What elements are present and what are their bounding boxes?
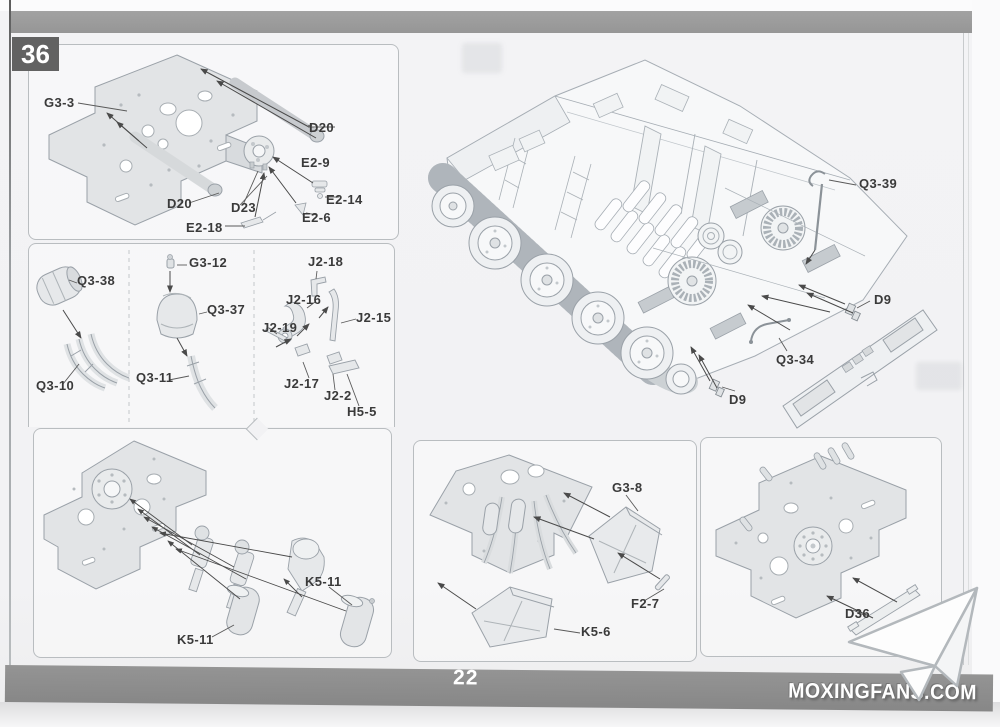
part-label-k5-11-a: K5-11 xyxy=(305,574,342,589)
panel-firewall-assemblies xyxy=(33,428,392,658)
part-label-d9-b: D9 xyxy=(729,392,746,407)
paper-plane-icon xyxy=(843,580,983,707)
step-number-badge: 36 xyxy=(12,37,59,71)
part-label-e2-14: E2-14 xyxy=(326,192,363,207)
part-label-j2-18: J2-18 xyxy=(308,254,343,269)
part-label-f2-7: F2-7 xyxy=(631,596,659,611)
page-number: 22 xyxy=(453,666,479,690)
part-label-q3-11: Q3-11 xyxy=(136,370,173,385)
part-label-e2-18: E2-18 xyxy=(186,220,223,235)
part-label-j2-19: J2-19 xyxy=(262,320,297,335)
part-label-d23: D23 xyxy=(231,200,256,215)
part-label-d9-a: D9 xyxy=(874,292,891,307)
page-spine-line xyxy=(9,0,11,668)
part-label-d20-a: D20 xyxy=(309,120,334,135)
part-label-g3-12: G3-12 xyxy=(189,255,227,270)
manual-page: 36 xyxy=(0,0,1000,727)
part-label-h5-5: H5-5 xyxy=(347,404,377,419)
firewall-assemblies-illustration xyxy=(34,429,391,657)
exhaust-covers-illustration xyxy=(414,441,696,661)
firewall-front-illustration xyxy=(29,45,398,239)
part-label-j2-2: J2-2 xyxy=(324,388,352,403)
panel-exhaust-covers xyxy=(413,440,697,662)
part-label-k5-11-b: K5-11 xyxy=(177,632,214,647)
part-label-g3-8: G3-8 xyxy=(612,480,643,495)
part-label-q3-34: Q3-34 xyxy=(776,352,814,367)
part-label-k5-6: K5-6 xyxy=(581,624,611,639)
part-label-j2-17: J2-17 xyxy=(284,376,319,391)
part-label-e2-9: E2-9 xyxy=(301,155,330,170)
part-label-g3-3: G3-3 xyxy=(44,95,75,110)
part-label-d20-b: D20 xyxy=(167,196,192,211)
scan-top-margin xyxy=(0,0,1000,11)
part-label-e2-6: E2-6 xyxy=(302,210,331,225)
part-label-q3-39: Q3-39 xyxy=(859,176,897,191)
part-label-q3-10: Q3-10 xyxy=(36,378,74,393)
part-label-q3-38: Q3-38 xyxy=(77,273,115,288)
panel-firewall-front xyxy=(28,44,399,240)
part-label-j2-16: J2-16 xyxy=(286,292,321,307)
part-label-j2-15: J2-15 xyxy=(356,310,391,325)
top-gray-band xyxy=(10,11,972,33)
part-label-q3-37: Q3-37 xyxy=(207,302,245,317)
tank-hull-illustration xyxy=(395,38,970,438)
